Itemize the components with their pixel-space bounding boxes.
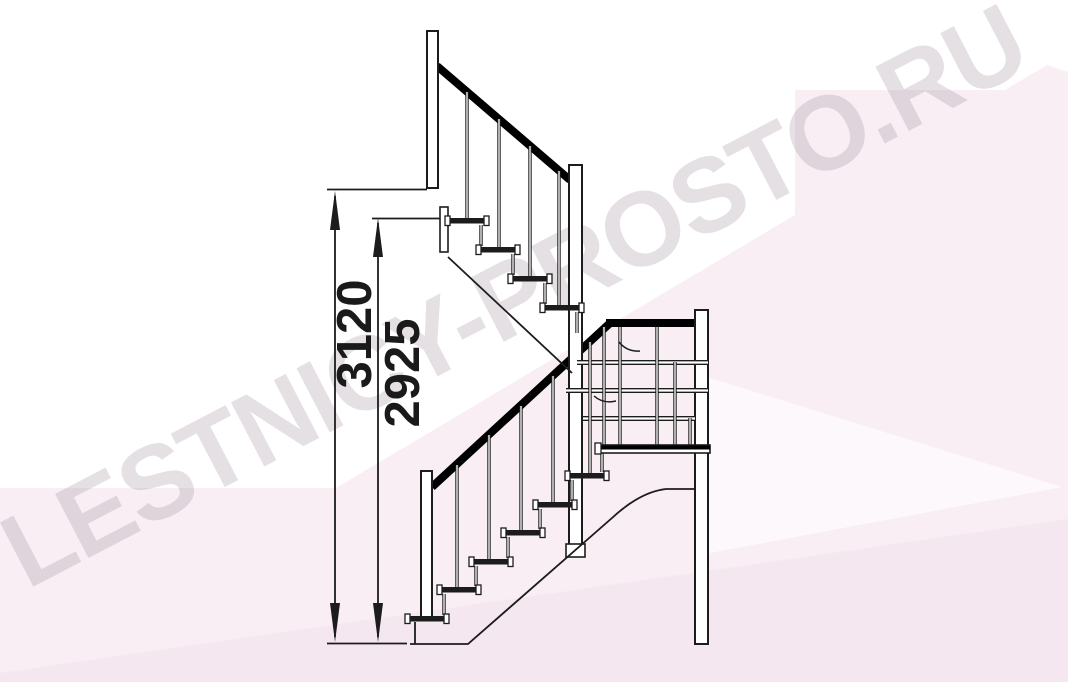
bottom-newel-post [421,471,432,617]
landing-floor-cap [595,443,601,454]
dimension-label-2925: 2925 [376,318,430,427]
tread [511,276,549,282]
tread [472,559,510,565]
tread [543,305,581,311]
tread [536,502,574,508]
winder-rails-highlight [566,363,708,419]
lower-flight [405,342,695,644]
floor-facing-board [440,207,448,252]
dimension-label-3120: 3120 [328,279,382,388]
lower-stringer [410,489,695,644]
tread [440,587,478,593]
upper-flight-handrail [437,66,570,180]
tread [448,218,486,224]
upper-balusters-and-risers [467,92,577,333]
tread [408,616,446,622]
staircase-elevation-svg: 3120 2925 [0,0,1068,682]
upper-flight [427,31,585,557]
arrow-up-3120 [330,191,340,230]
top-newel-post [427,31,438,188]
staircase-drawing-canvas: LESTNICY-PROSTO.RU 3120 2925 [0,0,1068,682]
tread [479,247,517,253]
arrow-down-3120 [330,603,340,642]
tread [504,530,542,536]
arrow-down-2925 [373,603,383,642]
arrow-up-2925 [373,218,383,257]
tread [568,473,606,479]
